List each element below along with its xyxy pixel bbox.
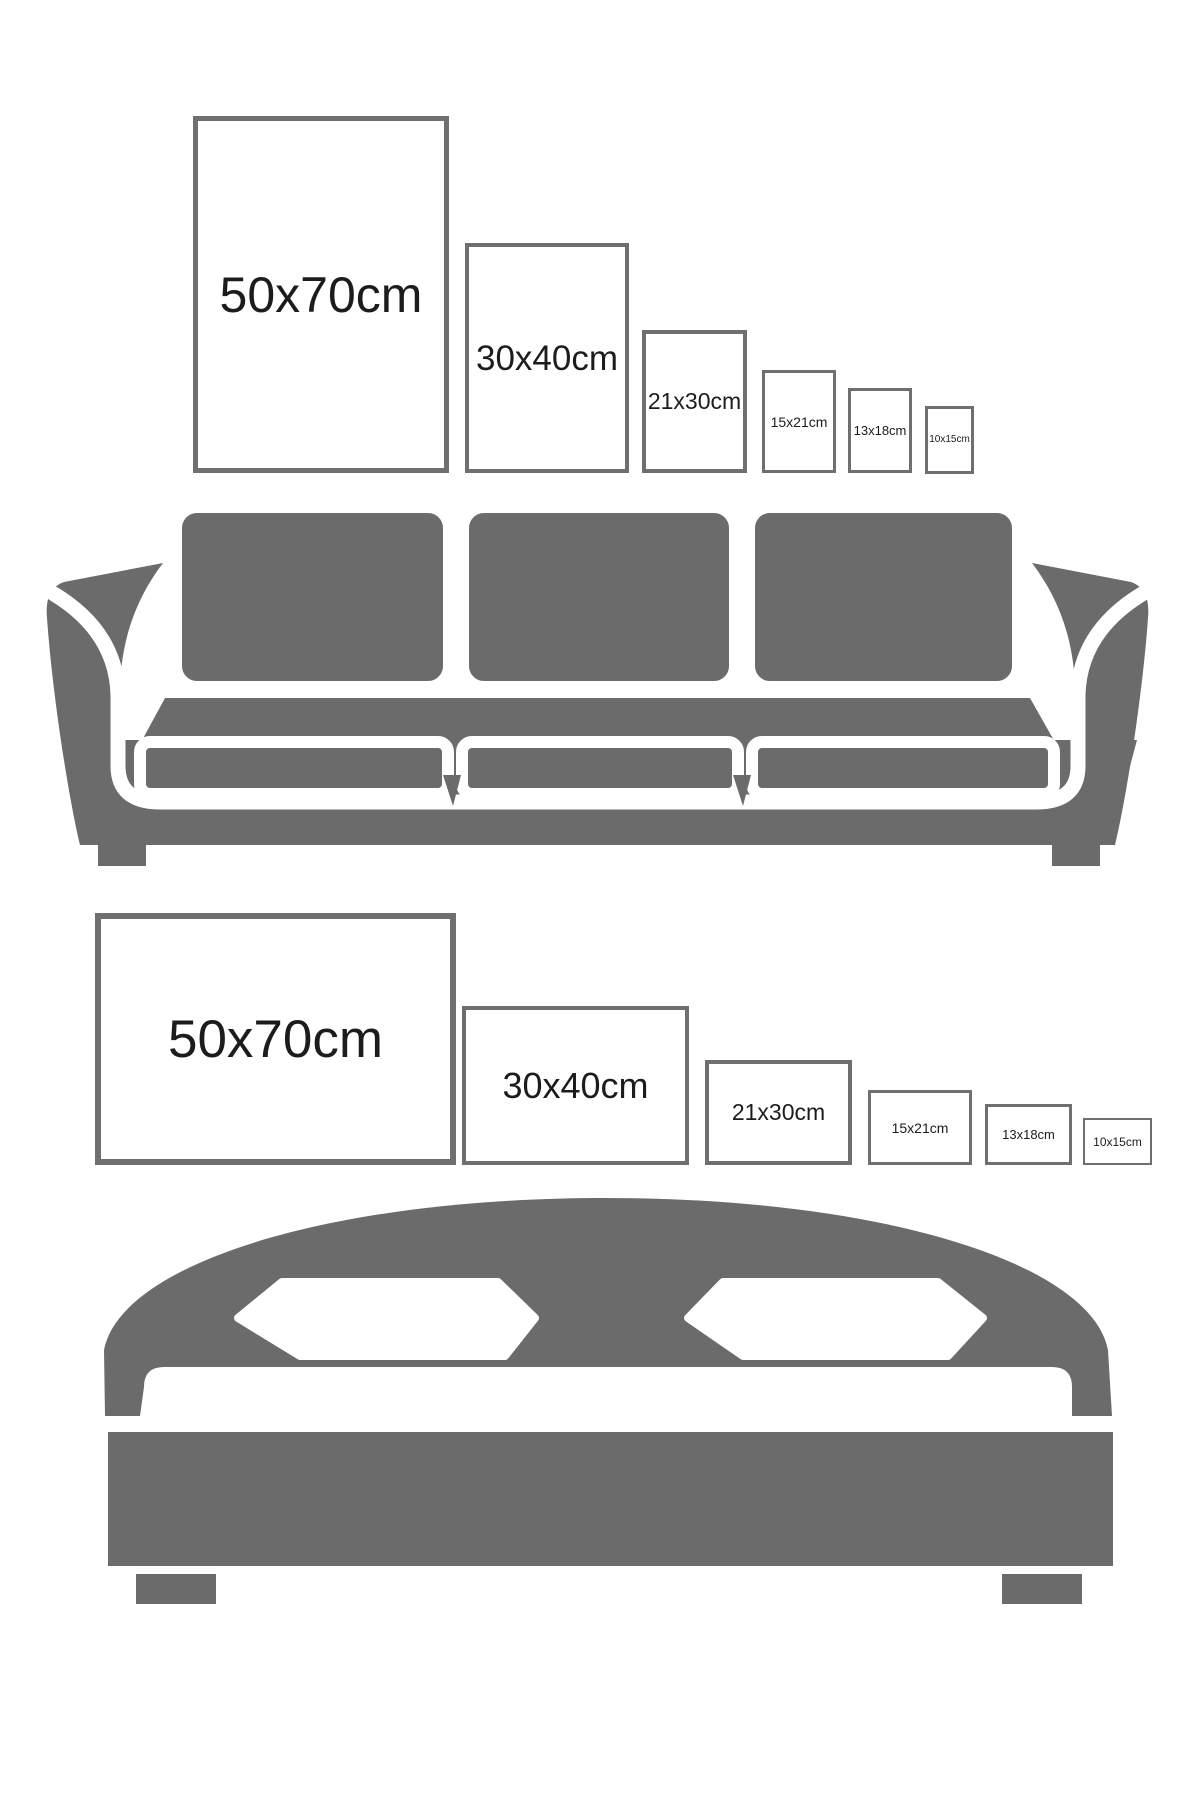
frame-portrait-50x70: 50x70cm: [193, 116, 449, 473]
size-guide-page: 50x70cm 30x40cm 21x30cm 15x21cm 13x18cm …: [0, 0, 1200, 1800]
sofa-seat-cushions: [140, 742, 1054, 794]
frame-landscape-10x15: 10x15cm: [1083, 1118, 1152, 1165]
frame-size-label: 50x70cm: [168, 1013, 383, 1066]
frame-size-label: 21x30cm: [648, 390, 741, 413]
frame-portrait-13x18: 13x18cm: [848, 388, 912, 473]
frame-portrait-10x15: 10x15cm: [925, 406, 974, 474]
frame-size-label: 21x30cm: [732, 1101, 825, 1124]
sofa-back-cushion: [177, 508, 448, 686]
frame-size-label: 13x18cm: [1002, 1128, 1055, 1141]
sofa-seat-cushion: [462, 742, 738, 794]
frame-landscape-50x70: 50x70cm: [95, 913, 456, 1165]
frame-portrait-15x21: 15x21cm: [762, 370, 836, 473]
frame-size-label: 10x15cm: [1093, 1136, 1142, 1148]
sofa-back-cushions: [177, 508, 1017, 686]
frame-size-label: 10x15cm: [929, 435, 970, 445]
bed-foot-left: [136, 1574, 216, 1604]
frame-landscape-21x30: 21x30cm: [705, 1060, 852, 1165]
sofa-back-cushion: [750, 508, 1017, 686]
frame-size-label: 15x21cm: [892, 1121, 949, 1135]
frame-landscape-13x18: 13x18cm: [985, 1104, 1072, 1165]
sofa-foot-right: [1052, 842, 1100, 866]
frame-size-label: 50x70cm: [220, 270, 423, 320]
sofa-seat-cushion: [752, 742, 1054, 794]
frame-size-label: 15x21cm: [771, 415, 828, 429]
sofa-back-cushion: [464, 508, 734, 686]
frame-size-label: 30x40cm: [476, 341, 618, 376]
frame-size-label: 30x40cm: [502, 1068, 648, 1104]
frame-portrait-21x30: 21x30cm: [642, 330, 747, 473]
frame-size-label: 13x18cm: [854, 424, 907, 437]
bed-pillow-left: [238, 1282, 535, 1356]
frame-portrait-30x40: 30x40cm: [465, 243, 629, 473]
frame-landscape-30x40: 30x40cm: [462, 1006, 689, 1165]
bed-icon: [95, 1190, 1120, 1610]
sofa-icon: [40, 500, 1155, 870]
bed-foot-right: [1002, 1574, 1082, 1604]
bed-pillow-right: [688, 1282, 983, 1356]
sofa-foot-left: [98, 842, 146, 866]
sofa-seat-cushion: [140, 742, 448, 794]
bed-base: [108, 1432, 1113, 1566]
frame-landscape-15x21: 15x21cm: [868, 1090, 972, 1165]
